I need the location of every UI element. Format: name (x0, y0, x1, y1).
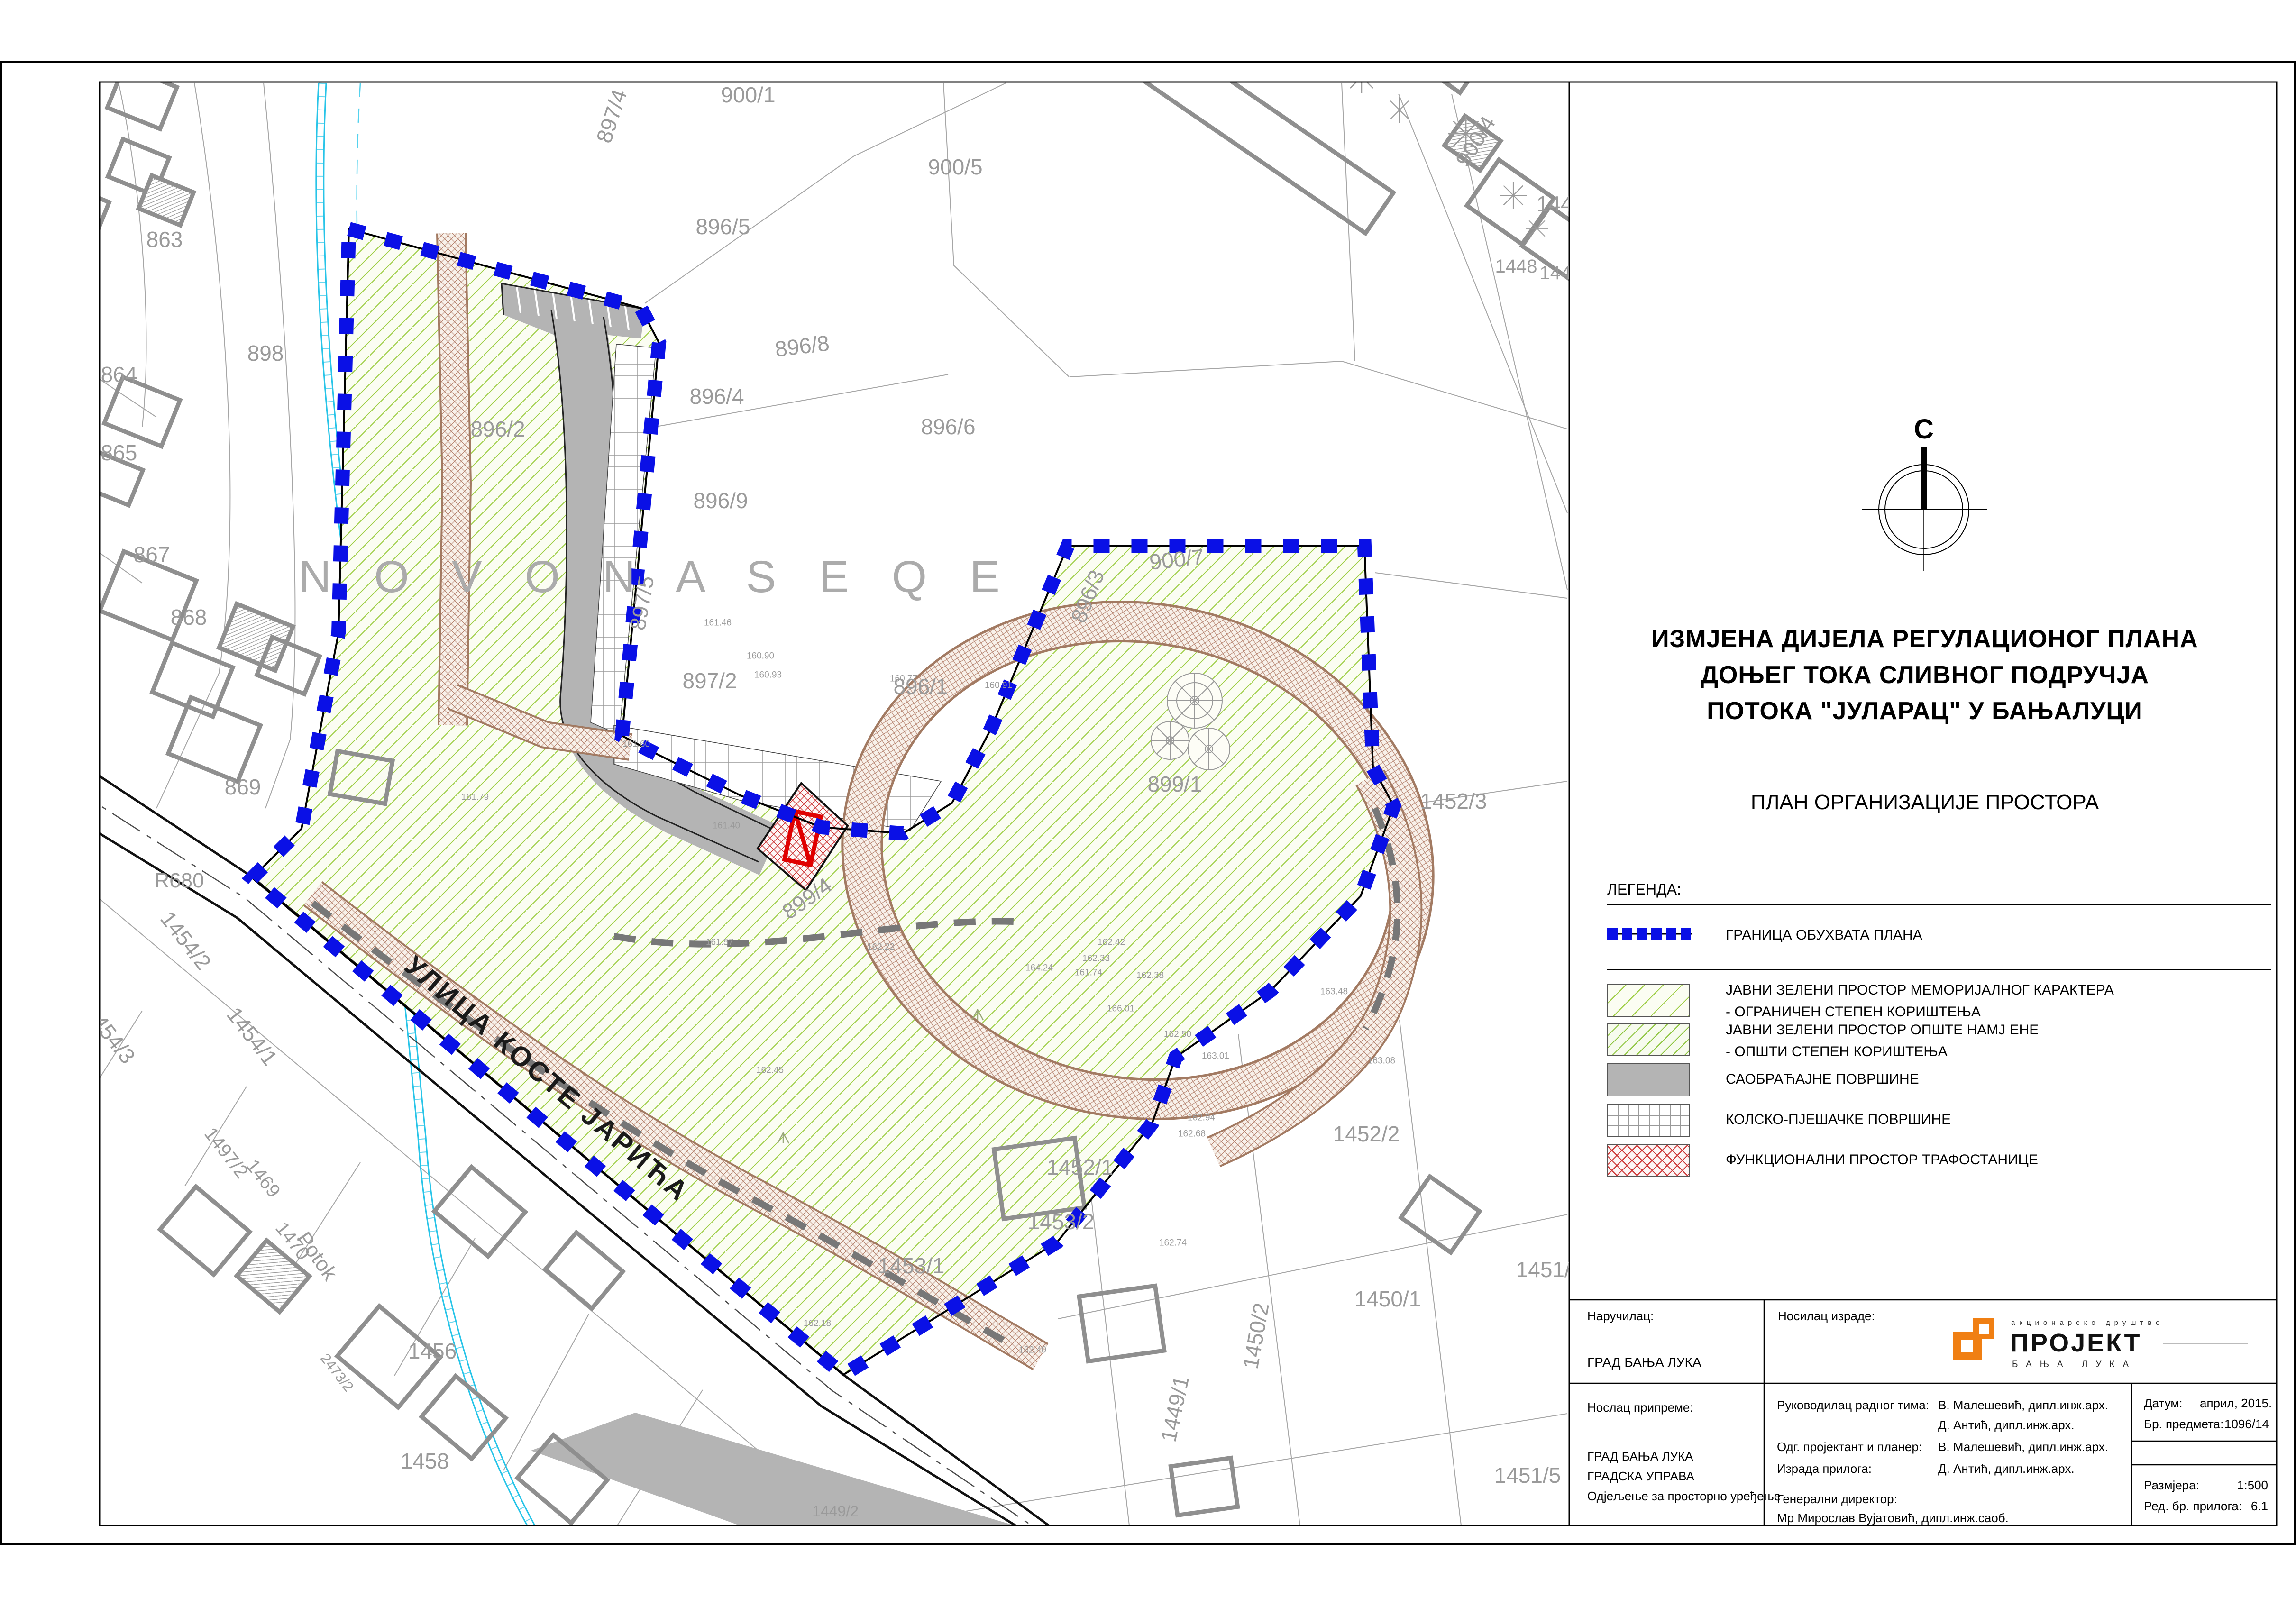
parcel-label: 2473/2 (318, 1351, 356, 1395)
parcel-label: 868 (171, 606, 207, 628)
parcel-label: 1449/1 (1157, 1374, 1192, 1443)
elevation-label: 161.57 (706, 938, 733, 947)
preparer-line3: Одјељење за просторно уређење (1587, 1489, 1781, 1504)
elevation-label: 162.42 (1098, 938, 1125, 947)
elevation-label: 166.01 (1107, 1004, 1134, 1014)
plan-title-line3: ПОТОКА "ЈУЛАРАЦ" У БАЊАЛУЦИ (1579, 697, 2271, 725)
planner-label: Одг. пројектант и планер: (1777, 1440, 1922, 1454)
elevation-label: 160.77 (890, 675, 917, 684)
plan-title-line2: ДОЊЕГ ТОКА СЛИВНОГ ПОДРУЧЈА (1579, 661, 2271, 689)
map-label-layer: N O V O N A S E Q E УЛИЦА КОСТЕ ЈАРИЋА 8… (100, 82, 1569, 1525)
parcel-label: 864 (101, 364, 137, 385)
elevation-label: 161.60 (622, 740, 650, 749)
elevation-label: 163.08 (1368, 1057, 1395, 1066)
parcel-label: 897/4 (593, 87, 630, 146)
attachment-row: Ред. бр. прилога: 6.1 (2144, 1499, 2268, 1514)
parcel-label: 867 (134, 544, 170, 566)
elevation-label: 160.91 (985, 681, 1012, 690)
legend-item-label: КОЛСКО-ПЈЕШАЧКЕ ПОВРШИНЕ (1726, 1112, 1951, 1128)
elevation-label: 162.45 (756, 1066, 784, 1075)
team-lead-value: В. Малешевић, дипл.инж.арх. (1938, 1398, 2108, 1413)
logo-address-line (2163, 1343, 2248, 1344)
legend-boundary-swatch (1607, 925, 1692, 942)
parcel-label: 896/6 (921, 416, 975, 438)
parcel-label: 1458 (401, 1450, 449, 1472)
elevation-label: 161.46 (704, 619, 732, 628)
parcel-label: 1454/3 (100, 1001, 139, 1067)
logo-company-type: акционарско друштво (2011, 1319, 2164, 1327)
parcel-label: 898 (247, 342, 284, 364)
legend-heading: ЛЕГЕНДА: (1607, 881, 1681, 898)
elevation-label: 160.93 (754, 671, 782, 680)
client-label: Наручилац: (1587, 1309, 1654, 1324)
date-value: април, 2015. (2200, 1397, 2272, 1411)
attachment-value: 6.1 (2251, 1499, 2268, 1514)
case-number-value: 1096/14 (2224, 1417, 2269, 1432)
parcel-label: 897/2 (682, 670, 737, 692)
legend-boundary-label: ГРАНИЦА ОБУХВАТА ПЛАНА (1726, 927, 1922, 943)
logo-company-city: БАЊА ЛУКА (2012, 1360, 2137, 1370)
elevation-label: 162.38 (1136, 971, 1164, 980)
elevation-label: 162.94 (1188, 1114, 1215, 1123)
team-member-value: Д. Антић, дипл.инж.арх. (1938, 1418, 2075, 1433)
north-symbol: C (1911, 413, 1937, 445)
author-label: Носилац израде: (1778, 1309, 1875, 1324)
parcel-label: 1449/2 (812, 1504, 859, 1519)
team-lead-label: Руководилац радног тима: (1777, 1398, 1929, 1413)
date-label: Датум: (2144, 1397, 2183, 1411)
preparer-label: Нослац припреме: (1587, 1401, 1693, 1415)
elevation-label: 162.74 (1159, 1239, 1187, 1248)
elevation-label: 162.33 (1082, 954, 1110, 963)
parcel-label: 1453/2 (1028, 1211, 1095, 1233)
elevation-label: 160.90 (747, 652, 774, 661)
area-label: N O V O N A S E Q E (299, 551, 1015, 603)
elevation-label: 162.22 (867, 943, 895, 952)
parcel-label: 900/1 (721, 84, 775, 106)
parcel-label: 1452/3 (1420, 790, 1487, 812)
elevation-label: 162.18 (804, 1319, 831, 1328)
scale-label: Размјера: (2144, 1478, 2199, 1493)
legend-swatch-green-general (1607, 1023, 1690, 1056)
parcel-label: 896/8 (774, 332, 831, 360)
parcel-label: 1445 (1537, 193, 1569, 215)
scale-row: Размјера: 1:500 (2144, 1478, 2268, 1493)
north-arrow (1862, 447, 1987, 571)
parcel-label: 899/4 (778, 874, 836, 923)
legend-swatch-traffic (1607, 1063, 1690, 1096)
parcel-label: 900/5 (928, 156, 982, 178)
parcel-label: 863 (146, 228, 183, 250)
legend-swatch-green-memorial (1607, 984, 1690, 1017)
parcel-label: 1451/5 (1494, 1464, 1561, 1486)
parcel-label: 1452/1 (1047, 1156, 1114, 1178)
legend-item-label: ЈАВНИ ЗЕЛЕНИ ПРОСТОР МЕМОРИЈАЛНОГ КАРАКТ… (1726, 982, 2114, 998)
elevation-label: 162.50 (1164, 1030, 1191, 1039)
elevation-label: 164.24 (1025, 964, 1053, 973)
parcel-label: 896/2 (470, 418, 525, 440)
case-number-label: Бр. предмета: (2144, 1417, 2223, 1432)
parcel-label: 1453/1 (878, 1255, 945, 1277)
parcel-label: 1450/2 (1239, 1301, 1272, 1371)
parcel-label: 896/5 (695, 216, 750, 237)
legend-item-label: - ОПШТИ СТЕПЕН КОРИШТЕЊА (1726, 1044, 1948, 1060)
parcel-label: R680 (154, 870, 204, 891)
scale-value: 1:500 (2237, 1478, 2268, 1493)
legend-item-label: - ОГРАНИЧЕН СТЕПЕН КОРИШТЕЊА (1726, 1004, 1981, 1020)
elevation-label: 161.74 (1075, 968, 1102, 977)
elevation-label: 162.68 (1178, 1130, 1206, 1139)
parcel-label: 1497/2 (201, 1124, 252, 1181)
director-value: Мр Мирослав Вујатовић, дипл.инж.саоб. (1777, 1511, 2009, 1525)
parcel-label: 1452/2 (1333, 1123, 1400, 1145)
director-label: Генерални директор: (1777, 1492, 1897, 1507)
parcel-label: 1454/1 (223, 1003, 282, 1069)
parcel-label: 1450/1 (1354, 1288, 1421, 1310)
plan-title-line1: ИЗМЈЕНА ДИЈЕЛА РЕГУЛАЦИОНОГ ПЛАНА (1579, 625, 2271, 653)
legend-swatch-pedestrian (1607, 1104, 1690, 1137)
preparer-line2: ГРАДСКА УПРАВА (1587, 1470, 1694, 1484)
street-label: УЛИЦА КОСТЕ ЈАРИЋА (399, 950, 696, 1208)
elevation-label: 163.01 (1202, 1052, 1229, 1061)
parcel-label: 896/9 (693, 490, 748, 511)
parcel-label: 1469 (243, 1156, 284, 1201)
elevation-label: 163.48 (1320, 987, 1348, 996)
parcel-label: 1451/4 (1516, 1259, 1569, 1280)
planner-value: В. Малешевић, дипл.инж.арх. (1938, 1440, 2108, 1454)
parcel-label: 1447 (1540, 264, 1569, 283)
parcel-label: 900/7 (1148, 546, 1205, 573)
legend-swatch-transformer (1607, 1144, 1690, 1177)
drawing-author-value: Д. Антић, дипл.инж.арх. (1938, 1462, 2075, 1476)
parcel-label: 1448 (1495, 257, 1537, 276)
legend-item-label: САОБРАЋАЈНЕ ПОВРШИНЕ (1726, 1071, 1919, 1087)
plan-sheet: N O V O N A S E Q E УЛИЦА КОСТЕ ЈАРИЋА 8… (0, 0, 2296, 1607)
legend-item-label: ФУНКЦИОНАЛНИ ПРОСТОР ТРАФОСТАНИЦЕ (1726, 1152, 2038, 1168)
elevation-label: 162.40 (1019, 1346, 1046, 1355)
parcel-label: 896/3 (1067, 567, 1108, 626)
projekt-logo-icon (1952, 1317, 2000, 1364)
preparer-line1: ГРАД БАЊА ЛУКА (1587, 1450, 1693, 1464)
parcel-label: 896/4 (689, 385, 744, 407)
plan-subtitle: ПЛАН ОРГАНИЗАЦИЈЕ ПРОСТОРА (1579, 791, 2271, 814)
parcel-label: 1456 (408, 1340, 457, 1362)
client-value: ГРАД БАЊА ЛУКА (1587, 1355, 1701, 1370)
logo-company-name: ПРОЈЕКТ (2010, 1328, 2141, 1358)
drawing-author-label: Израда прилога: (1777, 1462, 1872, 1476)
parcel-label: 899/1 (1147, 773, 1202, 795)
legend-item-label: ЈАВНИ ЗЕЛЕНИ ПРОСТОР ОПШТЕ НАМЈ ЕНЕ (1726, 1022, 2039, 1038)
parcel-label: 900/4 (1452, 112, 1499, 170)
elevation-label: 161.79 (461, 793, 489, 802)
parcel-label: 869 (225, 776, 261, 798)
parcel-label: 865 (101, 442, 137, 464)
parcel-label: 1454/2 (157, 907, 215, 973)
elevation-label: 161.40 (713, 822, 740, 831)
attachment-label: Ред. бр. прилога: (2144, 1499, 2242, 1514)
